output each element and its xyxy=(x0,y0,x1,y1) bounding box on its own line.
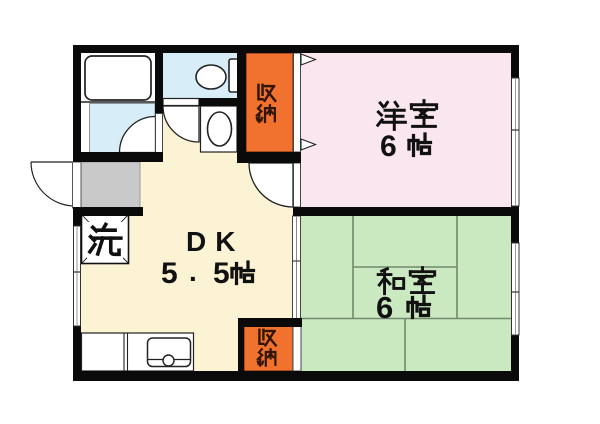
svg-text:DK: DK xyxy=(186,226,244,257)
svg-text:.: . xyxy=(189,256,197,287)
svg-text:6: 6 xyxy=(380,130,397,163)
svg-text:5: 5 xyxy=(161,257,178,290)
svg-text:6: 6 xyxy=(376,290,393,325)
svg-text:5: 5 xyxy=(213,257,230,290)
